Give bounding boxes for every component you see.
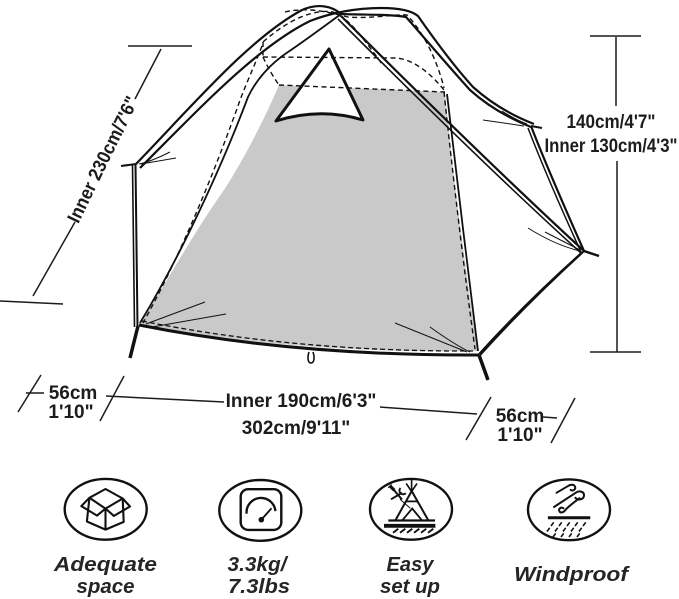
svg-text:302cm/9'11": 302cm/9'11" <box>242 418 351 439</box>
svg-text:Inner 130cm/4'3": Inner 130cm/4'3" <box>545 136 678 157</box>
svg-text:Windproof: Windproof <box>514 564 631 586</box>
svg-text:56cm: 56cm <box>49 383 98 404</box>
svg-text:Inner 190cm/6'3": Inner 190cm/6'3" <box>226 391 377 412</box>
svg-text:1'10": 1'10" <box>48 402 93 423</box>
svg-text:7.3lbs: 7.3lbs <box>228 576 290 598</box>
svg-text:Easy: Easy <box>387 554 435 576</box>
svg-text:56cm: 56cm <box>496 406 545 427</box>
svg-text:1'10": 1'10" <box>497 425 542 446</box>
svg-text:3.3kg/: 3.3kg/ <box>228 554 290 576</box>
svg-text:140cm/4'7": 140cm/4'7" <box>567 112 656 133</box>
svg-text:Adequate: Adequate <box>53 554 157 576</box>
svg-text:set up: set up <box>380 576 440 598</box>
svg-text:space: space <box>77 576 135 598</box>
